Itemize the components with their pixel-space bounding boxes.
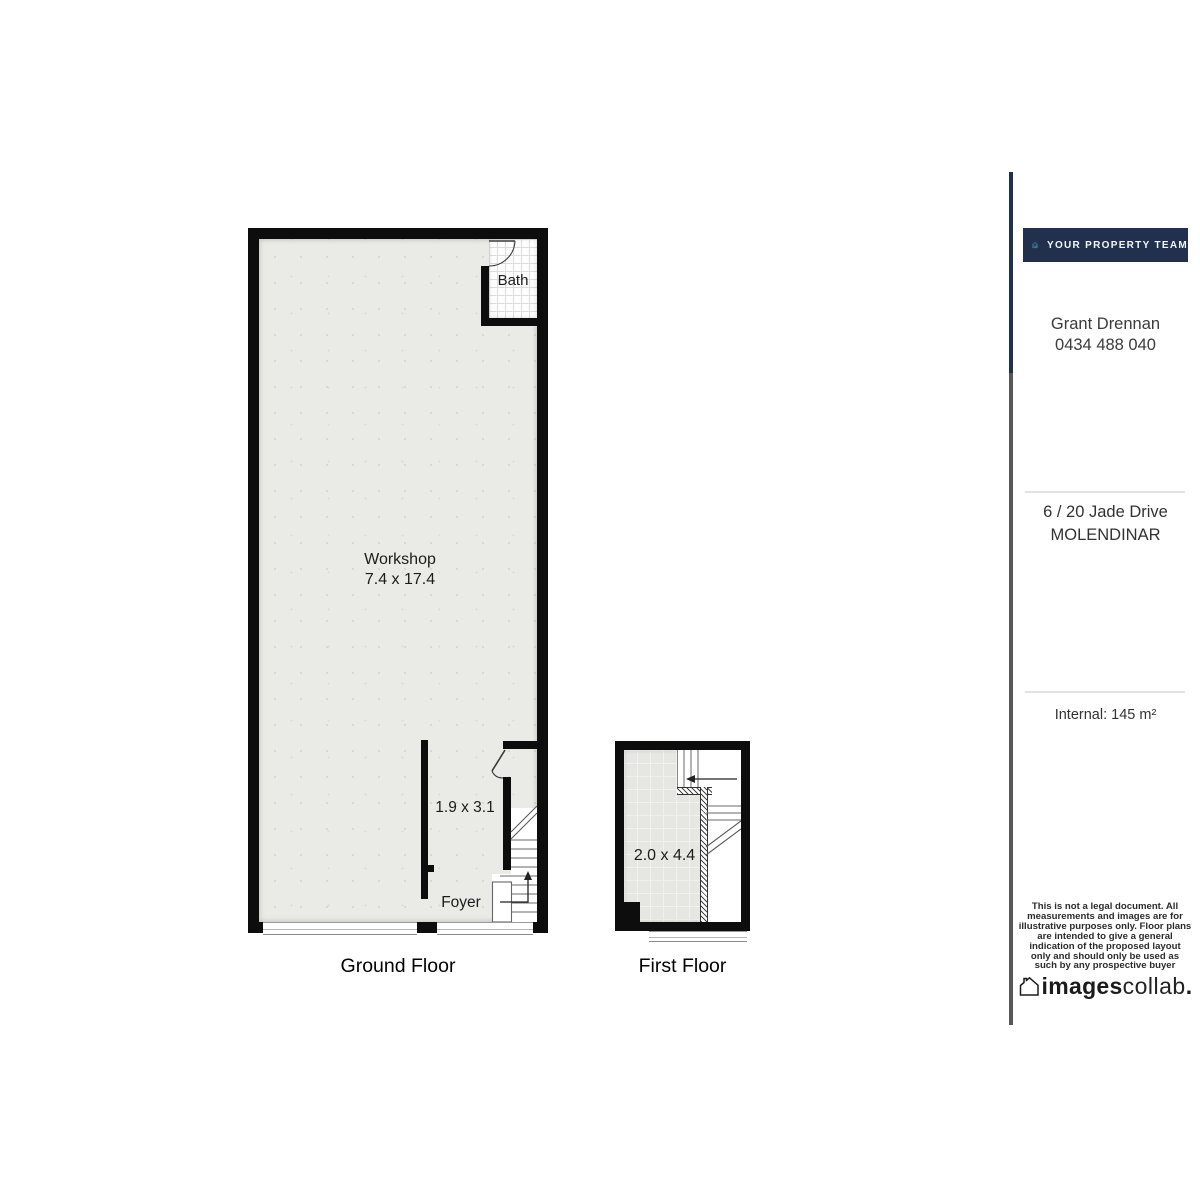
floorplan-page: Workshop 7.4 x 17.4 Bath 1.9 x 3.1 Foyer…: [0, 0, 1200, 1200]
first-floor-window-opening: [649, 931, 747, 942]
watermark: imagescollab.: [1009, 973, 1200, 1000]
agent-block: Grant Drennan 0434 488 040: [1013, 314, 1198, 356]
watermark-period: .: [1186, 973, 1193, 999]
agent-phone: 0434 488 040: [1013, 335, 1198, 356]
foyer-dims-label: 1.9 x 3.1: [390, 799, 540, 817]
ground-floor-plan: Workshop 7.4 x 17.4 Bath 1.9 x 3.1 Foyer: [248, 228, 548, 933]
address-line2: MOLENDINAR: [1013, 524, 1198, 547]
first-floor-stairs: [624, 750, 741, 922]
roller-door-opening-left: [263, 922, 417, 935]
bath-door: [489, 241, 515, 266]
first-floor-room-dims: 2.0 x 4.4: [624, 847, 705, 865]
first-floor-caption: First Floor: [615, 955, 750, 978]
workshop-name: Workshop: [300, 550, 500, 570]
brand-bar: YOUR PROPERTY TEAM: [1023, 228, 1188, 262]
foyer-label: Foyer: [386, 894, 536, 912]
stair-direction-arrow: [686, 775, 737, 783]
workshop-dims: 7.4 x 17.4: [300, 570, 500, 590]
workshop-label: Workshop 7.4 x 17.4: [300, 550, 500, 590]
watermark-bold: images: [1042, 973, 1123, 999]
brand-name: YOUR PROPERTY TEAM: [1047, 240, 1188, 251]
watermark-house-icon: [1017, 974, 1041, 998]
address-line1: 6 / 20 Jade Drive: [1013, 501, 1198, 524]
ground-floor-caption: Ground Floor: [248, 955, 548, 978]
sidebar-rule-gray: [1009, 373, 1013, 1025]
agent-name: Grant Drennan: [1013, 314, 1198, 335]
sidebar-divider: [1025, 691, 1185, 693]
first-floor-plan: 2.0 x 4.4: [615, 741, 750, 931]
disclaimer-text: This is not a legal document. All measur…: [1014, 902, 1196, 971]
bath-label: Bath: [489, 272, 537, 289]
stairwell-door: [492, 750, 505, 778]
address-block: 6 / 20 Jade Drive MOLENDINAR: [1013, 501, 1198, 547]
watermark-light: collab: [1123, 973, 1186, 999]
roller-door-opening-right: [437, 922, 533, 935]
sidebar-divider: [1025, 491, 1185, 493]
brand-house-icon: [1032, 233, 1038, 257]
internal-area: Internal: 145 m²: [1013, 707, 1198, 723]
